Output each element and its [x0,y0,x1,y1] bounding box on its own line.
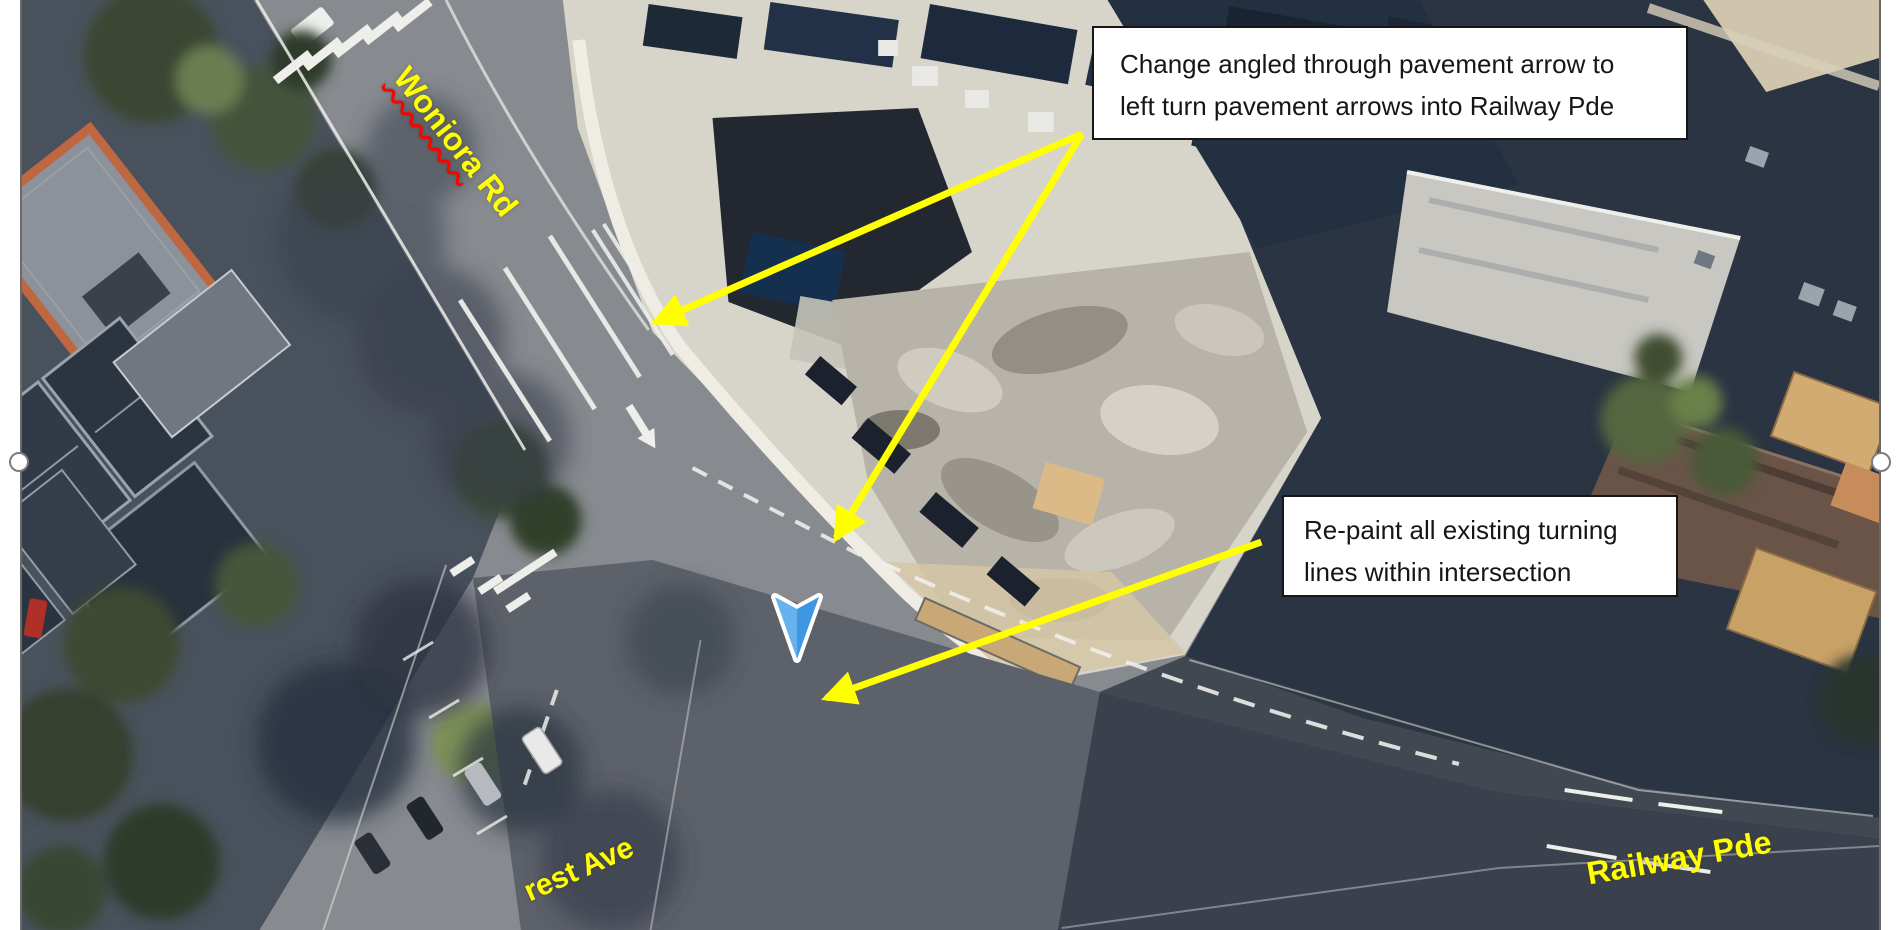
callout-line: Change angled through pavement arrow to [1120,43,1660,85]
selection-handle-left[interactable] [9,452,29,472]
callout-change-arrows[interactable]: Change angled through pavement arrow to … [1092,26,1688,140]
callout-line: lines within intersection [1304,551,1656,593]
callout-line: left turn pavement arrows into Railway P… [1120,85,1660,127]
aerial-map-image[interactable]: Change angled through pavement arrow to … [20,0,1881,930]
callout-repaint[interactable]: Re-paint all existing turning lines with… [1282,495,1678,597]
slide-canvas: Change angled through pavement arrow to … [0,0,1900,930]
navigation-arrow-icon[interactable] [767,585,827,665]
callout-line: Re-paint all existing turning [1304,509,1656,551]
selection-handle-right[interactable] [1871,452,1891,472]
